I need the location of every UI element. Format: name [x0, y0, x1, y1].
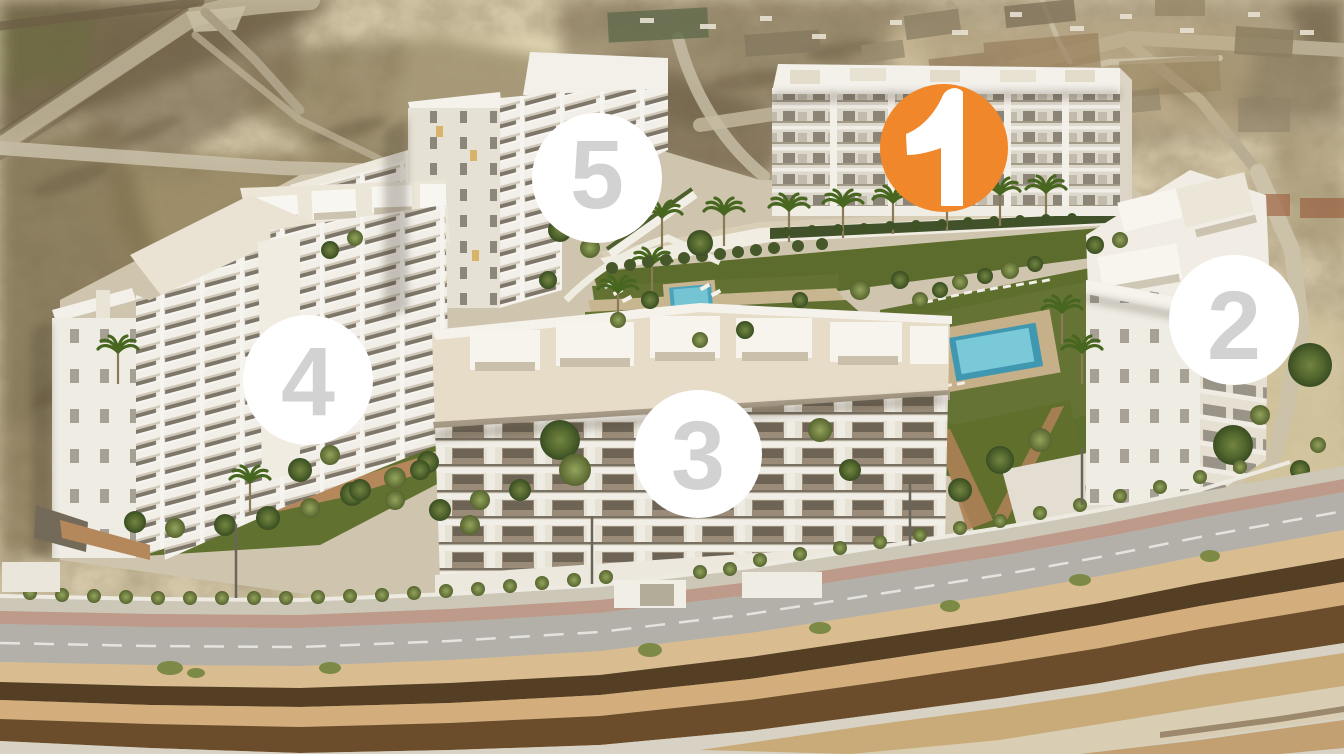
svg-text:3: 3	[671, 401, 725, 510]
svg-text:4: 4	[281, 327, 335, 436]
svg-text:5: 5	[570, 120, 624, 229]
svg-text:2: 2	[1207, 271, 1261, 380]
